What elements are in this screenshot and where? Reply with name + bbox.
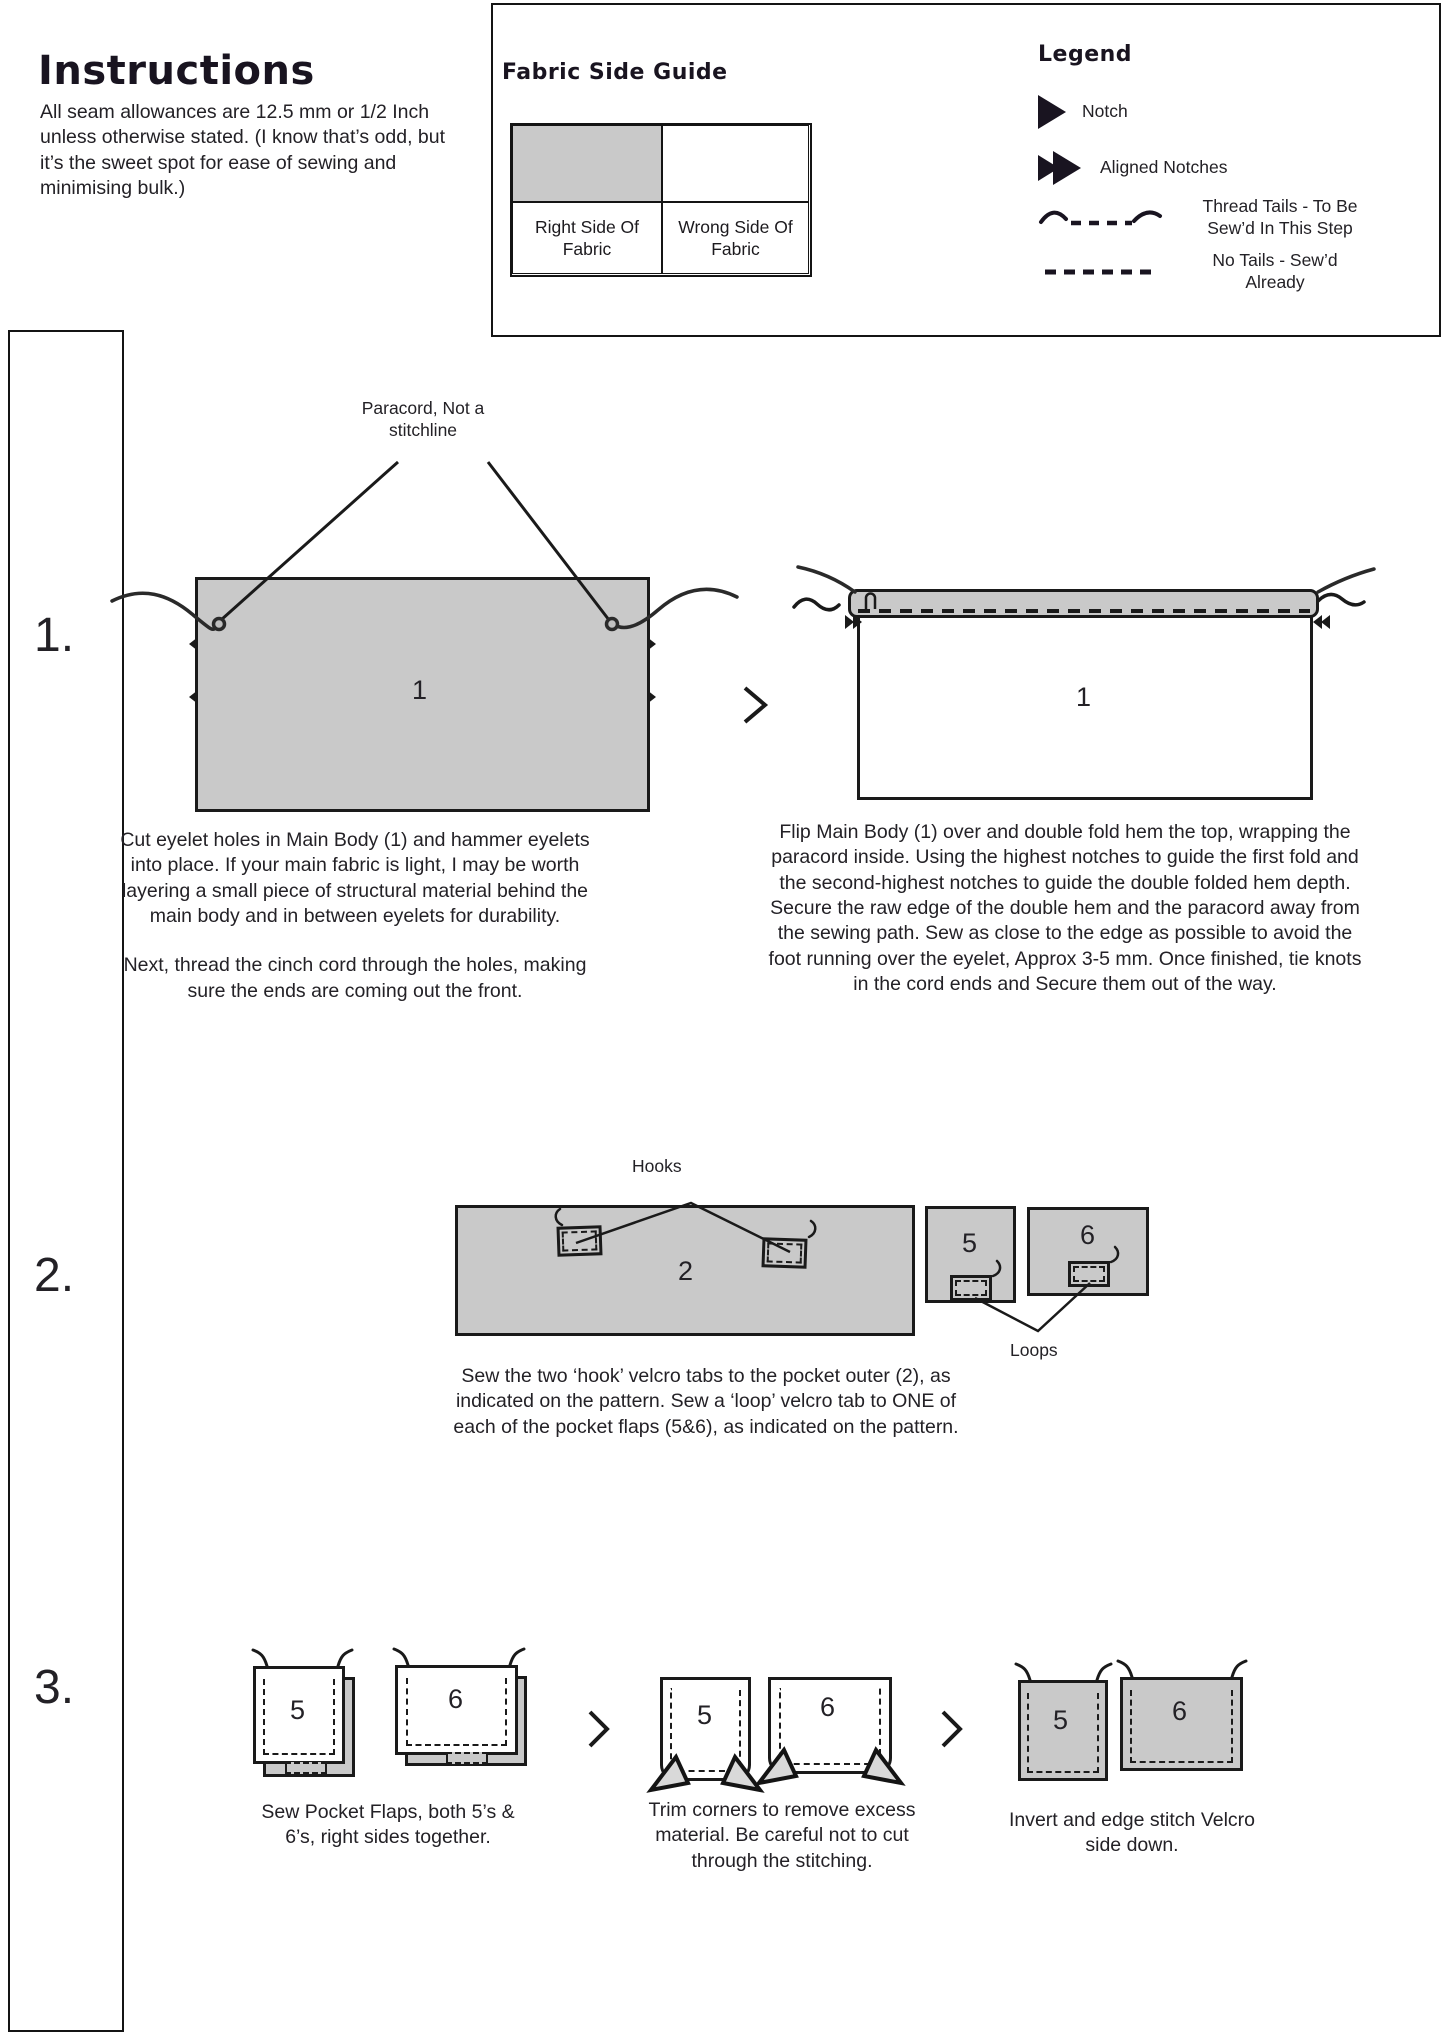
- pocket-outer-label: 2: [678, 1256, 693, 1287]
- step-3-text-a: Sew Pocket Flaps, both 5’s & 6’s, right …: [252, 1800, 524, 1851]
- main-body-flipped-label: 1: [1076, 682, 1091, 713]
- loops-label: Loops: [1010, 1340, 1058, 1362]
- page-title: Instructions: [38, 48, 315, 94]
- right-side-label: Right Side Of Fabric: [512, 202, 662, 274]
- thread-tails-icon: [1038, 203, 1164, 233]
- loop-tab-5: [950, 1275, 992, 1301]
- legend-label: Notch: [1082, 101, 1128, 123]
- legend-row-notch: Notch: [1038, 95, 1128, 129]
- flap6-trimmed-label: 6: [820, 1692, 835, 1723]
- loop-tab-6: [1068, 1261, 1110, 1287]
- wrong-side-swatch: [662, 125, 809, 202]
- flap6-peek-tab: [446, 1752, 488, 1764]
- legend-label: Thread Tails - To Be Sew’d In This Step: [1180, 196, 1380, 240]
- pocket-flap-5-label: 5: [962, 1228, 977, 1259]
- flap6-inverted-label: 6: [1172, 1696, 1187, 1727]
- flap5-inverted-label: 5: [1053, 1705, 1068, 1736]
- hooks-label: Hooks: [632, 1156, 682, 1178]
- fabric-guide-title: Fabric Side Guide: [502, 60, 728, 85]
- instruction-sheet: Instructions All seam allowances are 12.…: [0, 0, 1445, 2044]
- step-2-number: 2.: [34, 1248, 74, 1303]
- flap6-label: 6: [448, 1684, 463, 1715]
- paracord-annotation: Paracord, Not a stitchline: [333, 398, 513, 442]
- step-1-text-left-b: Next, thread the cinch cord through the …: [105, 953, 605, 1004]
- step-3-number: 3.: [34, 1660, 74, 1715]
- legend-label: No Tails - Sew’d Already: [1185, 250, 1365, 294]
- step-3-text-b: Trim corners to remove excess material. …: [648, 1798, 916, 1874]
- step-1-text-right: Flip Main Body (1) over and double fold …: [762, 820, 1368, 997]
- no-tails-icon: [1043, 265, 1161, 279]
- legend-row-no-tails: No Tails - Sew’d Already: [1043, 250, 1365, 294]
- flap5-trimmed-label: 5: [697, 1700, 712, 1731]
- intro-text: All seam allowances are 12.5 mm or 1/2 I…: [40, 100, 452, 201]
- fabric-guide-table: Right Side Of Fabric Wrong Side Of Fabri…: [510, 123, 812, 277]
- hook-tab-left: [556, 1225, 602, 1257]
- wrong-side-label: Wrong Side Of Fabric: [662, 202, 809, 274]
- hook-tab-right: [761, 1237, 807, 1269]
- legend-row-aligned-notches: Aligned Notches: [1038, 150, 1227, 186]
- legend-label: Aligned Notches: [1100, 157, 1227, 179]
- right-side-swatch: [512, 125, 662, 202]
- pocket-flap-6-label: 6: [1080, 1220, 1095, 1251]
- step-1-text-left: Cut eyelet holes in Main Body (1) and ha…: [105, 828, 605, 1004]
- step-2-text: Sew the two ‘hook’ velcro tabs to the po…: [446, 1364, 966, 1440]
- step-rail: [8, 330, 124, 2032]
- step-1-text-left-a: Cut eyelet holes in Main Body (1) and ha…: [105, 828, 605, 929]
- flap5-label: 5: [290, 1695, 305, 1726]
- notch-icon: [1038, 95, 1066, 129]
- flap5-peek-tab: [285, 1762, 327, 1774]
- step-1-number: 1.: [34, 608, 74, 663]
- folded-hem-band: [848, 589, 1319, 618]
- legend-row-thread-tails: Thread Tails - To Be Sew’d In This Step: [1038, 196, 1380, 240]
- legend-title: Legend: [1038, 42, 1132, 67]
- aligned-notches-icon: [1038, 150, 1084, 186]
- step-3-text-c: Invert and edge stitch Velcro side down.: [1002, 1808, 1262, 1859]
- main-body-label: 1: [412, 675, 427, 706]
